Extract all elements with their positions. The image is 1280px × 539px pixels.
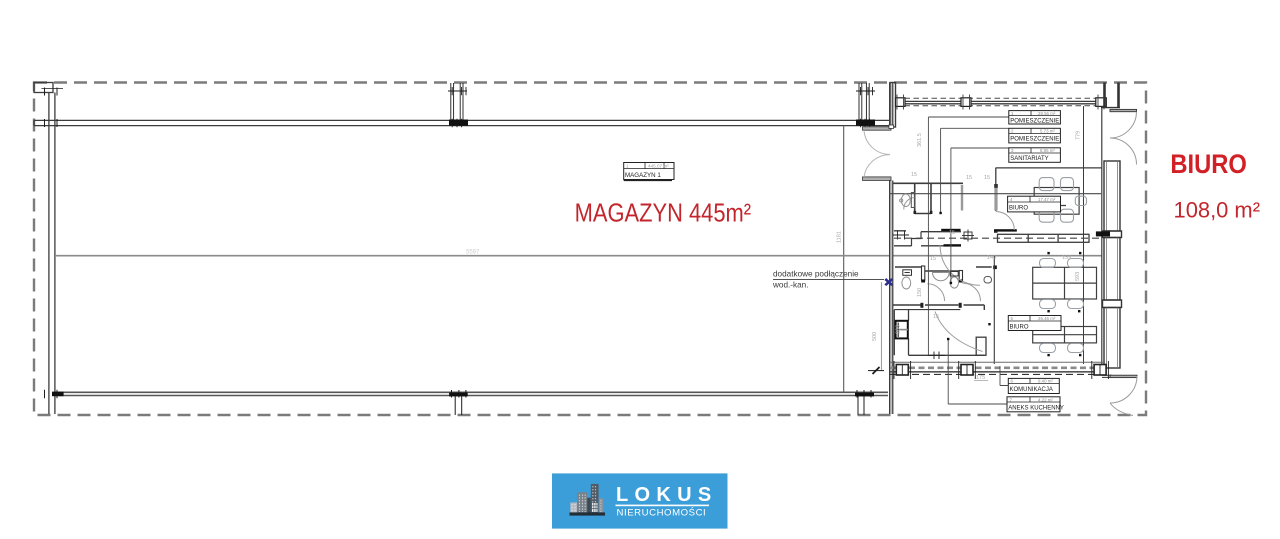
svg-text:BIURO: BIURO <box>1009 206 1028 212</box>
svg-text:ANEKS KUCHENNY: ANEKS KUCHENNY <box>1008 406 1064 412</box>
svg-text:BIURO: BIURO <box>1170 149 1247 179</box>
svg-text:15: 15 <box>933 314 939 320</box>
svg-text:26.46 m²: 26.46 m² <box>1038 316 1056 321</box>
svg-text:1181: 1181 <box>837 231 843 243</box>
svg-text:POMIESZCZENIE: POMIESZCZENIE <box>1010 118 1059 124</box>
svg-text:MAGAZYN 1: MAGAZYN 1 <box>625 172 661 179</box>
svg-text:8.95 m²: 8.95 m² <box>1040 148 1055 153</box>
svg-text:5.73 m²: 5.73 m² <box>1040 129 1055 134</box>
svg-text:BIURO: BIURO <box>1010 324 1029 330</box>
svg-text:445.07 m²: 445.07 m² <box>648 164 669 169</box>
svg-text:15: 15 <box>930 256 936 262</box>
svg-text:500: 500 <box>872 332 878 341</box>
svg-text:263: 263 <box>896 325 902 334</box>
svg-text:15: 15 <box>911 172 917 178</box>
svg-text:wod.-kan.: wod.-kan. <box>772 280 809 289</box>
svg-text:5597: 5597 <box>466 250 480 256</box>
svg-text:1: 1 <box>626 164 629 169</box>
svg-text:15: 15 <box>966 175 972 181</box>
svg-text:15: 15 <box>949 230 955 236</box>
svg-text:dodatkowe podłączenie: dodatkowe podłączenie <box>773 269 859 278</box>
svg-text:SANITARIATY: SANITARIATY <box>1010 156 1048 162</box>
svg-text:9.40 m²: 9.40 m² <box>1038 379 1053 384</box>
svg-text:NIERUCHOMOŚCI: NIERUCHOMOŚCI <box>617 506 707 518</box>
svg-text:POMIESZCZENIE: POMIESZCZENIE <box>1010 137 1059 143</box>
svg-text:17.47 m²: 17.47 m² <box>1038 197 1056 202</box>
svg-text:361.5: 361.5 <box>917 133 923 147</box>
svg-text:LOKUS: LOKUS <box>616 484 718 506</box>
svg-text:28.56 m²: 28.56 m² <box>1038 111 1056 116</box>
svg-text:779: 779 <box>1076 131 1082 140</box>
svg-text:4.22 m²: 4.22 m² <box>1038 397 1053 402</box>
svg-text:159: 159 <box>1062 255 1071 261</box>
svg-text:140: 140 <box>987 255 996 261</box>
svg-text:108,0 m²: 108,0 m² <box>1174 198 1261 223</box>
svg-text:MAGAZYN 445m²: MAGAZYN 445m² <box>575 198 752 228</box>
svg-text:KOMUNIKACJA: KOMUNIKACJA <box>1010 387 1053 393</box>
svg-text:150: 150 <box>917 288 923 297</box>
svg-text:15: 15 <box>984 175 990 181</box>
svg-text:593: 593 <box>1075 272 1081 281</box>
